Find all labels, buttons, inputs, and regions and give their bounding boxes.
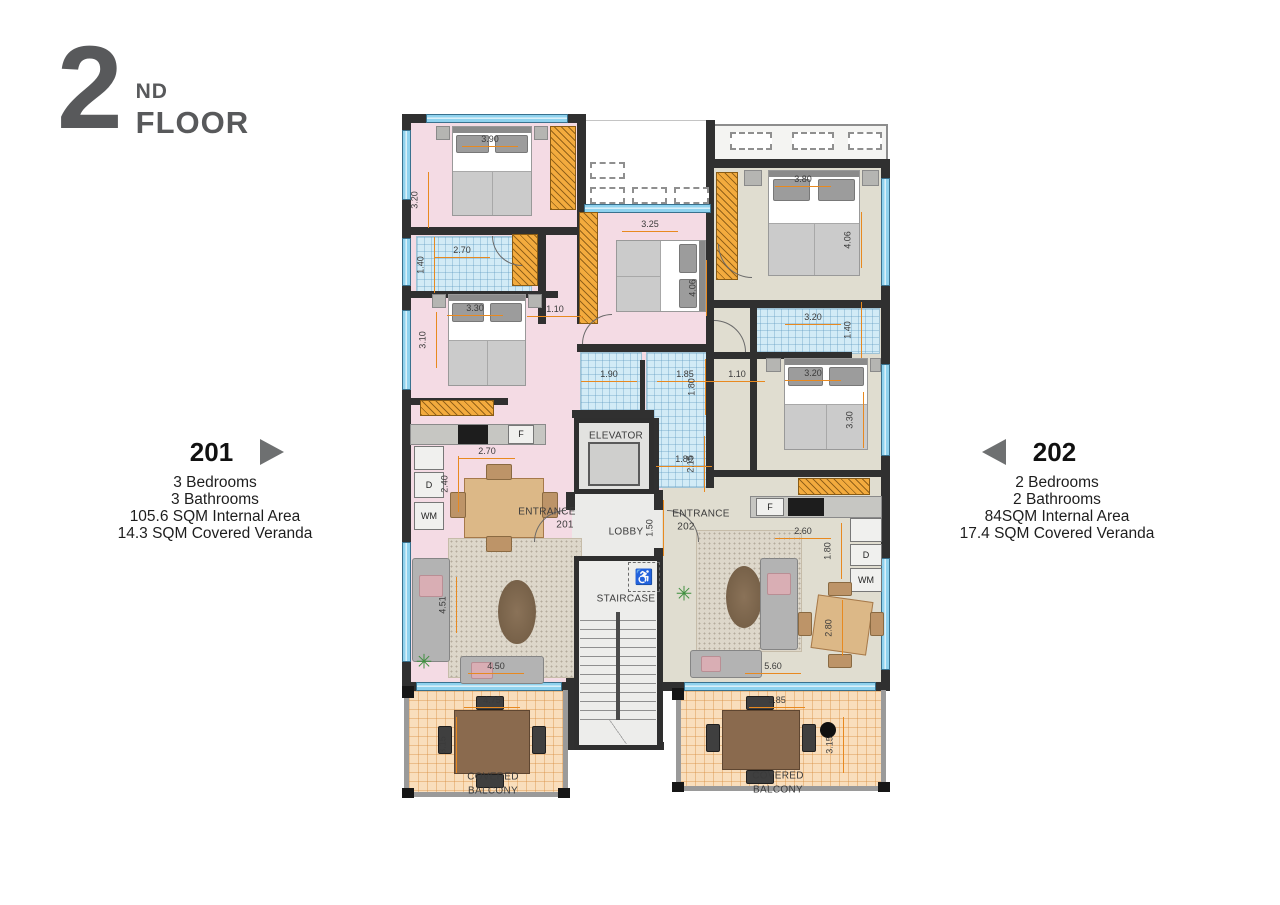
dimension-label: 5.60 bbox=[764, 661, 782, 671]
unit-201-number: 201 bbox=[190, 437, 233, 468]
arrow-right-icon bbox=[260, 439, 284, 465]
dimension-line bbox=[749, 707, 805, 708]
dimension-line bbox=[785, 324, 841, 325]
dimension-line bbox=[458, 456, 459, 512]
room-label: 202 bbox=[677, 522, 695, 533]
dimension-label: 4.50 bbox=[487, 661, 505, 671]
dimension-label: 2.60 bbox=[794, 526, 812, 536]
dimension-label: 4.06 bbox=[842, 231, 852, 249]
dimension-label: 2.70 bbox=[453, 245, 471, 255]
room-label: 201 bbox=[556, 520, 574, 531]
dimension-label: 3.25 bbox=[641, 219, 659, 229]
dimension-line bbox=[581, 381, 637, 382]
dimension-label: 1.40 bbox=[415, 256, 425, 274]
room-label: BALCONY bbox=[753, 785, 803, 796]
dimension-line bbox=[775, 538, 831, 539]
unit-201-veranda: 14.3 SQM Covered Veranda bbox=[95, 525, 335, 542]
appliance-label: D bbox=[863, 550, 870, 560]
dimension-label: 4.51 bbox=[437, 596, 447, 614]
room-label: LOBBY bbox=[609, 527, 644, 538]
dimension-line bbox=[861, 212, 862, 268]
room-label: ENTRANCE bbox=[672, 509, 729, 520]
dimension-label: 3.15 bbox=[437, 736, 447, 754]
dimension-line bbox=[459, 458, 515, 459]
dimension-label: 3.20 bbox=[804, 368, 822, 378]
unit-202-panel: 202 2 Bedrooms 2 Bathrooms 84SQM Interna… bbox=[937, 437, 1177, 542]
dimension-line bbox=[705, 359, 706, 415]
dimension-line bbox=[745, 673, 801, 674]
dimension-label: 3.30 bbox=[466, 303, 484, 313]
dimension-label: 3.80 bbox=[794, 174, 812, 184]
unit-202-header: 202 bbox=[909, 437, 1149, 467]
dimension-line bbox=[663, 500, 664, 556]
appliance-label: F bbox=[518, 429, 524, 439]
dimension-label: 1.50 bbox=[644, 519, 654, 537]
unit-201-header: 201 bbox=[117, 437, 357, 467]
dimension-line bbox=[709, 381, 765, 382]
dimension-label: 1.80 bbox=[686, 378, 696, 396]
floor-plan: ♿ ✳ ✳ 3.903.202.701.403.303.101.103.254.… bbox=[400, 112, 890, 804]
unit-202-number: 202 bbox=[1033, 437, 1076, 468]
dimension-line bbox=[622, 231, 678, 232]
dimension-label: 2.15 bbox=[685, 455, 695, 473]
dimension-line bbox=[468, 673, 524, 674]
dimension-line bbox=[843, 717, 844, 773]
unit-202-veranda: 17.4 SQM Covered Veranda bbox=[937, 525, 1177, 542]
dimension-line bbox=[462, 146, 518, 147]
floor-word: FLOOR bbox=[136, 105, 250, 141]
dimension-label: 3.20 bbox=[409, 191, 419, 209]
dimension-line bbox=[841, 523, 842, 579]
unit-201-details: 3 Bedrooms 3 Bathrooms 105.6 SQM Interna… bbox=[95, 474, 335, 542]
unit-201-bathrooms: 3 Bathrooms bbox=[95, 491, 335, 508]
dimension-line bbox=[456, 577, 457, 633]
plan-annotations: 3.903.202.701.403.303.101.103.254.061.90… bbox=[400, 112, 890, 804]
dimension-line bbox=[447, 315, 503, 316]
floor-suffix: ND bbox=[136, 80, 250, 104]
unit-201-bedrooms: 3 Bedrooms bbox=[95, 474, 335, 491]
appliance-label: WM bbox=[858, 575, 874, 585]
dimension-label: 3.10 bbox=[417, 331, 427, 349]
dimension-label: 1.90 bbox=[600, 369, 618, 379]
room-label: COVERED bbox=[752, 771, 804, 782]
dimension-label: 3.30 bbox=[844, 411, 854, 429]
floor-number: 2 bbox=[57, 40, 123, 141]
dimension-line bbox=[456, 717, 457, 773]
page-title: 2 ND FLOOR bbox=[57, 40, 249, 141]
dimension-line bbox=[863, 392, 864, 448]
unit-202-bathrooms: 2 Bathrooms bbox=[937, 491, 1177, 508]
dimension-label: 2.40 bbox=[439, 475, 449, 493]
dimension-label: 1.40 bbox=[842, 321, 852, 339]
dimension-label: 1.80 bbox=[822, 542, 832, 560]
floor-words: ND FLOOR bbox=[136, 40, 250, 141]
dimension-line bbox=[434, 237, 435, 293]
appliance-label: D bbox=[426, 480, 433, 490]
dimension-label: 4.06 bbox=[687, 279, 697, 297]
dimension-line bbox=[464, 707, 520, 708]
dimension-line bbox=[436, 312, 437, 368]
dimension-label: 3.90 bbox=[481, 134, 499, 144]
room-label: BALCONY bbox=[468, 786, 518, 797]
dimension-line bbox=[428, 172, 429, 228]
dimension-line bbox=[861, 302, 862, 358]
dimension-label: 1.10 bbox=[546, 304, 564, 314]
unit-201-panel: 201 3 Bedrooms 3 Bathrooms 105.6 SQM Int… bbox=[95, 437, 335, 542]
dimension-line bbox=[527, 316, 583, 317]
dimension-line bbox=[434, 257, 490, 258]
appliance-label: F bbox=[767, 502, 773, 512]
unit-201-internal-area: 105.6 SQM Internal Area bbox=[95, 508, 335, 525]
appliance-label: WM bbox=[421, 511, 437, 521]
dimension-label: 1.10 bbox=[728, 369, 746, 379]
unit-202-internal-area: 84SQM Internal Area bbox=[937, 508, 1177, 525]
dimension-label: 2.80 bbox=[823, 619, 833, 637]
dimension-label: 4.75 bbox=[483, 695, 501, 705]
arrow-left-icon bbox=[982, 439, 1006, 465]
dimension-line bbox=[775, 186, 831, 187]
dimension-label: 5.85 bbox=[768, 695, 786, 705]
room-label: COVERED bbox=[467, 772, 519, 783]
room-label: ELEVATOR bbox=[589, 431, 643, 442]
dimension-line bbox=[706, 260, 707, 316]
dimension-label: 3.15 bbox=[824, 736, 834, 754]
unit-202-bedrooms: 2 Bedrooms bbox=[937, 474, 1177, 491]
dimension-line bbox=[704, 436, 705, 492]
dimension-label: 2.70 bbox=[478, 446, 496, 456]
room-label: STAIRCASE bbox=[597, 594, 656, 605]
dimension-label: 3.20 bbox=[804, 312, 822, 322]
dimension-line bbox=[785, 380, 841, 381]
unit-202-details: 2 Bedrooms 2 Bathrooms 84SQM Internal Ar… bbox=[937, 474, 1177, 542]
floor-plan-page: 2 ND FLOOR 201 3 Bedrooms 3 Bathrooms 10… bbox=[0, 0, 1280, 905]
dimension-line bbox=[842, 600, 843, 656]
room-label: ENTRANCE bbox=[518, 507, 575, 518]
